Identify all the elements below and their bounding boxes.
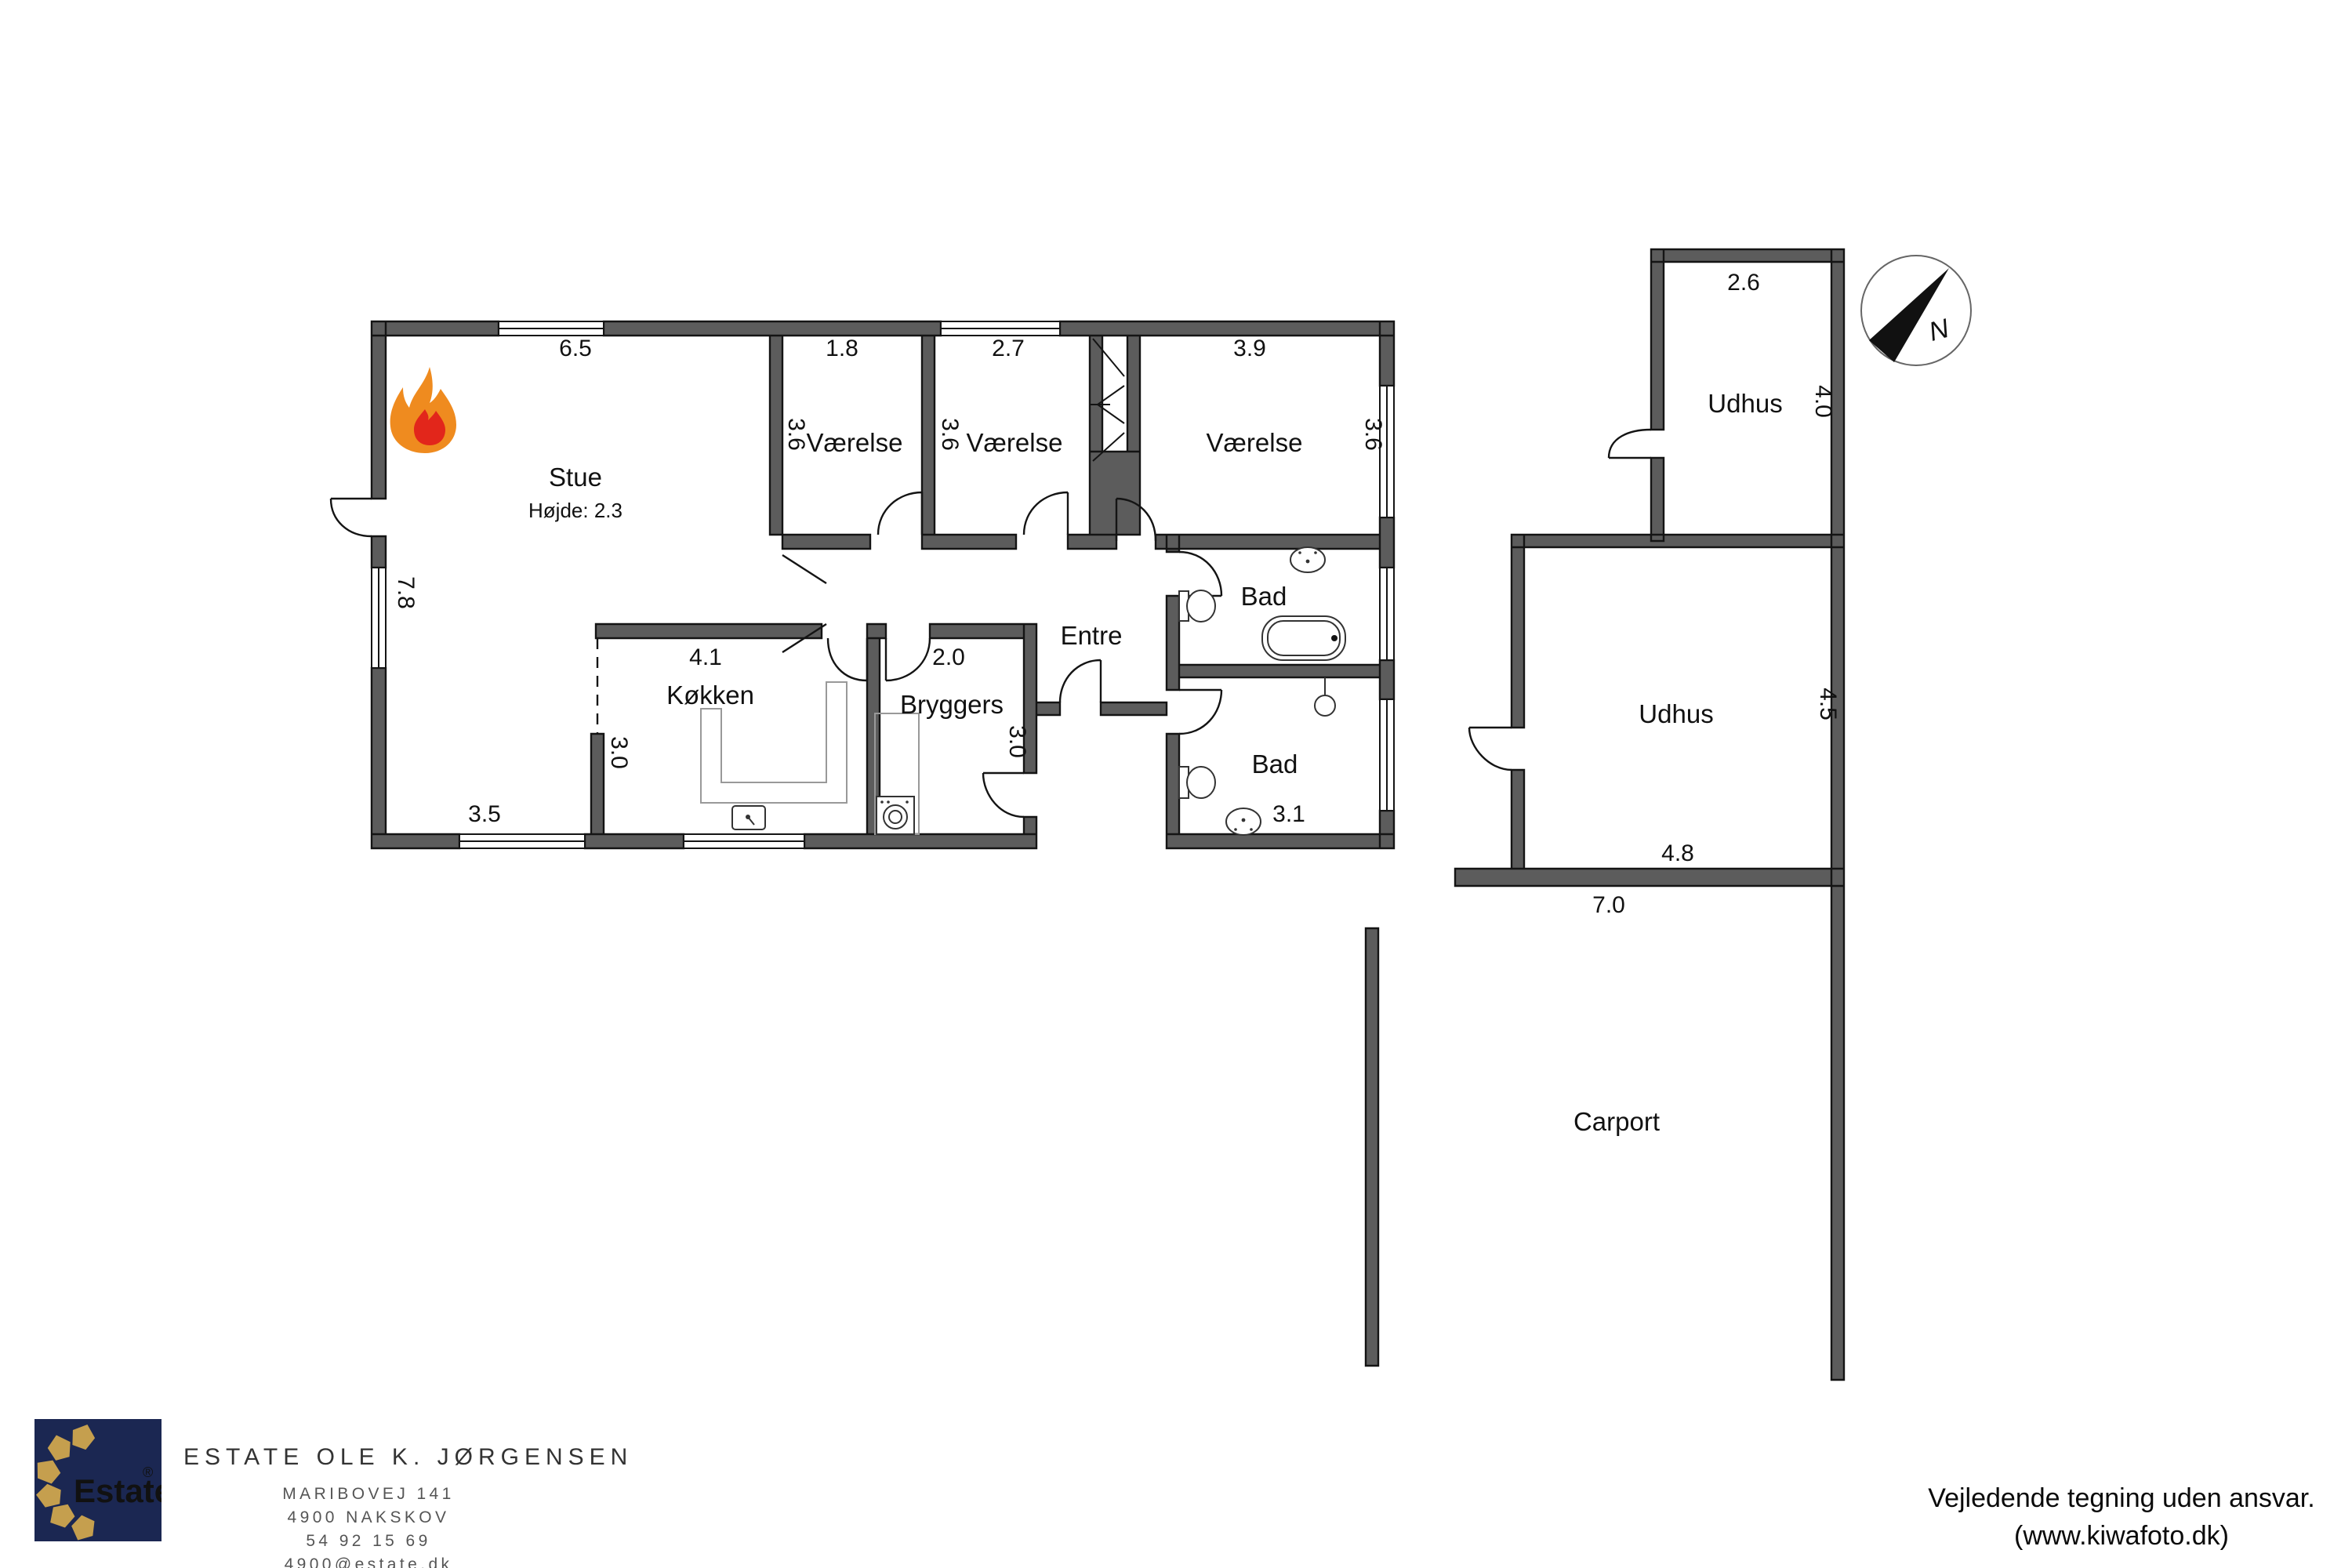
- washing-machine: [877, 797, 914, 834]
- dim-vaerelse1-width: 1.8: [826, 336, 858, 361]
- room-label-entre: Entre: [1061, 621, 1123, 650]
- door-arc: [1179, 690, 1221, 734]
- room-label-bad-1: Bad: [1241, 582, 1287, 611]
- dim-udhus2-wall: 7.0: [1592, 892, 1625, 918]
- door-arc: [1060, 660, 1101, 702]
- dim-vaerelse3-width: 3.9: [1233, 336, 1266, 361]
- floorplan-page: N Stue Højde: 2.3 Værelse Værelse Værels…: [0, 0, 2352, 1568]
- kitchen-sink: [732, 806, 765, 829]
- door-arc: [1179, 552, 1221, 596]
- door-arc: [331, 499, 372, 536]
- door-arc: [886, 638, 930, 681]
- room-label-stue: Stue: [549, 463, 602, 492]
- disclaimer-line2: (www.kiwafoto.dk): [1886, 1518, 2352, 1555]
- fireplace-icon: [390, 367, 456, 453]
- sink: [1226, 808, 1261, 835]
- dim-stue-depth: 7.8: [393, 576, 419, 609]
- agency-name: ESTATE OLE K. JØRGENSEN: [183, 1444, 633, 1471]
- dim-udhus2-depth: 4.5: [1815, 688, 1841, 720]
- room-label-vaerelse-1: Værelse: [807, 428, 903, 457]
- dim-koekken-width: 4.1: [689, 644, 722, 670]
- room-note-stue: Højde: 2.3: [528, 499, 622, 522]
- agency-address-line2: 4900 NAKSKOV: [172, 1507, 564, 1530]
- room-label-vaerelse-3: Værelse: [1207, 428, 1303, 457]
- agency-address-block: MARIBOVEJ 141 4900 NAKSKOV 54 92 15 69 4…: [172, 1483, 564, 1568]
- door-arc: [1609, 430, 1651, 458]
- dim-udhus2-width: 4.8: [1661, 840, 1694, 866]
- estate-logo: Estate ®: [34, 1419, 162, 1541]
- agency-email: 4900@estate.dk: [172, 1554, 564, 1568]
- agency-phone: 54 92 15 69: [172, 1530, 564, 1554]
- dim-koekken-depth: 3.0: [606, 736, 632, 769]
- door-arc: [983, 773, 1024, 817]
- room-label-carport: Carport: [1573, 1107, 1660, 1136]
- room-label-vaerelse-2: Værelse: [967, 428, 1063, 457]
- dim-bryggers-depth: 3.0: [1004, 725, 1030, 758]
- floor-drain: [1315, 677, 1335, 716]
- floorplan-drawing: N Stue Højde: 2.3 Værelse Værelse Værels…: [0, 0, 2352, 1568]
- room-label-udhus-2: Udhus: [1639, 699, 1713, 728]
- dim-vaerelse1-depth: 3.6: [783, 418, 809, 451]
- dim-vaerelse3-depth: 3.6: [1360, 418, 1386, 451]
- room-label-bad-2: Bad: [1252, 750, 1298, 779]
- dim-vaerelse2-width: 2.7: [992, 336, 1025, 361]
- door-swings: [331, 339, 1651, 817]
- dim-stue-width: 6.5: [559, 336, 592, 361]
- door-arc: [878, 492, 922, 535]
- compass: N: [1861, 256, 1971, 365]
- dim-vaerelse2-depth: 3.6: [937, 418, 963, 451]
- room-label-bryggers: Bryggers: [900, 690, 1004, 719]
- door-arc: [1469, 728, 1512, 770]
- bathtub: [1262, 616, 1345, 660]
- dim-udhus1-depth: 4.0: [1810, 385, 1836, 418]
- disclaimer-line1: Vejledende tegning uden ansvar.: [1886, 1480, 2352, 1518]
- sink: [1290, 547, 1325, 572]
- toilet: [1179, 590, 1215, 622]
- room-label-udhus-1: Udhus: [1708, 389, 1782, 418]
- room-label-koekken: Køkken: [666, 681, 754, 710]
- agency-address-line1: MARIBOVEJ 141: [172, 1483, 564, 1507]
- dim-bad2-width: 3.1: [1272, 801, 1305, 827]
- logo-registered-mark: ®: [143, 1465, 153, 1480]
- disclaimer: Vejledende tegning uden ansvar. (www.kiw…: [1886, 1480, 2352, 1555]
- dim-udhus1-width: 2.6: [1727, 270, 1760, 296]
- door-arc: [1024, 492, 1068, 535]
- door-arc: [828, 638, 867, 681]
- dim-bryggers-width: 2.0: [932, 644, 965, 670]
- dim-stue-bottom: 3.5: [468, 801, 501, 827]
- toilet: [1179, 767, 1215, 798]
- walls: [372, 249, 1844, 1380]
